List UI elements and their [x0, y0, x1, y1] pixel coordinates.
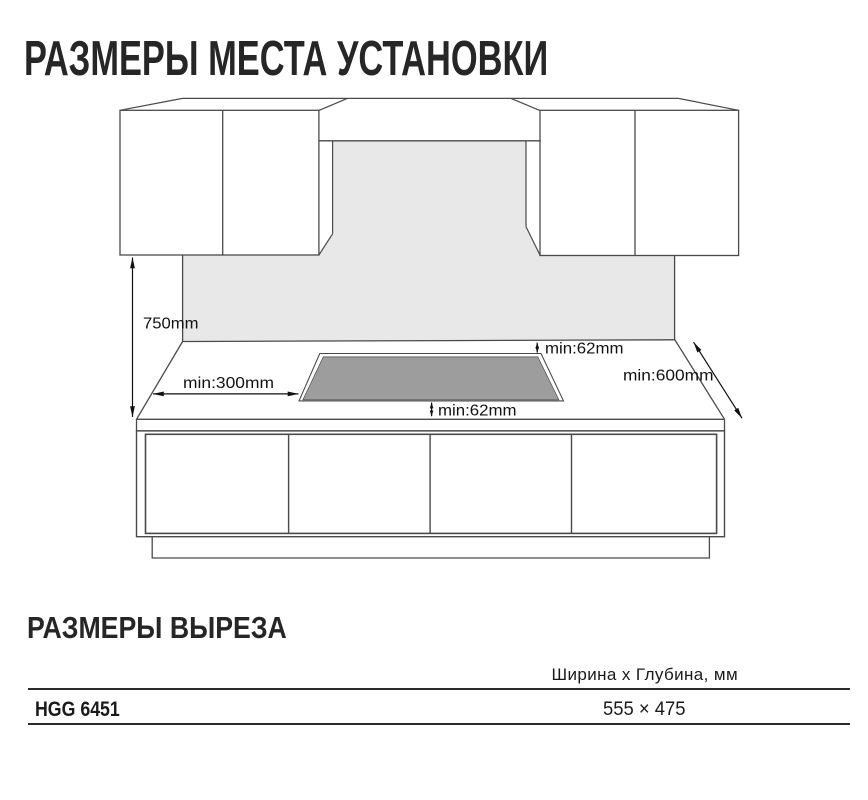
svg-text:min:600mm: min:600mm: [623, 367, 714, 384]
svg-text:min:300mm: min:300mm: [183, 375, 274, 392]
svg-text:min:62mm: min:62mm: [545, 340, 624, 357]
svg-text:min:62mm: min:62mm: [438, 403, 517, 420]
svg-text:750mm: 750mm: [143, 316, 199, 333]
